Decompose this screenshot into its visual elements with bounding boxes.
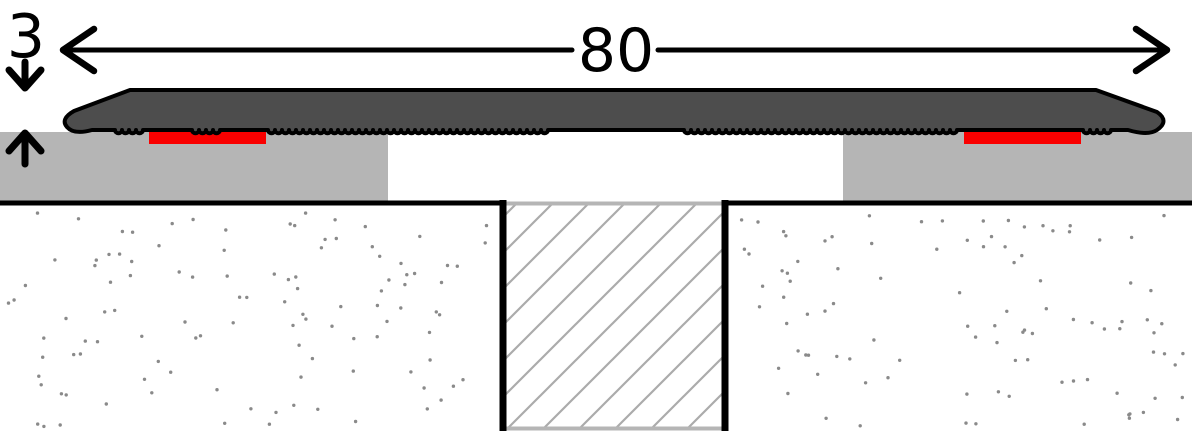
stipple-dot [1176, 418, 1179, 421]
stipple-dot [53, 258, 56, 261]
stipple-dot [935, 248, 938, 251]
stipple-dot [287, 278, 290, 281]
stipple-dot [304, 317, 307, 320]
stipple-dot [868, 214, 871, 217]
stipple-dot [413, 272, 416, 275]
stipple-dot [859, 424, 862, 427]
stipple-dot [1152, 350, 1155, 353]
stipple-dot [299, 375, 302, 378]
stipple-dot [249, 407, 252, 410]
stipple-dot [1072, 318, 1075, 321]
stipple-dot [376, 304, 379, 307]
stipple-dot [1045, 307, 1048, 310]
stipple-dot [1160, 322, 1163, 325]
stipple-dot [292, 404, 295, 407]
stipple-dot [316, 408, 319, 411]
stipple-dot [37, 375, 40, 378]
stipple-dot [352, 337, 355, 340]
stipple-dot [385, 320, 388, 323]
stipple-dot [439, 398, 442, 401]
stipple-dot [1051, 229, 1054, 232]
stipple-dot [42, 425, 45, 428]
stipple-dot [974, 422, 977, 425]
stipple-dot [387, 278, 390, 281]
stipple-dot [297, 344, 300, 347]
stipple-dot [293, 224, 296, 227]
stipple-dot [59, 423, 62, 426]
stipple-dot [301, 313, 304, 316]
stipple-dot [1039, 279, 1042, 282]
stipple-dot [823, 239, 826, 242]
stipple-dot [995, 341, 998, 344]
stipple-dot [452, 385, 455, 388]
stipple-dot [333, 218, 336, 221]
stipple-dot [993, 324, 996, 327]
stipple-dot [816, 373, 819, 376]
stipple-dot [941, 219, 944, 222]
stipple-dot [1072, 379, 1075, 382]
stipple-dot [966, 239, 969, 242]
stipple-dot [140, 335, 143, 338]
stipple-dot [72, 353, 75, 356]
stipple-dot [191, 275, 194, 278]
stipple-dot [761, 285, 764, 288]
stipple-dot [121, 230, 124, 233]
stipple-dot [990, 235, 993, 238]
diagram-canvas: 80 3 [0, 0, 1200, 440]
stipple-dot [1130, 236, 1133, 239]
stipple-dot [830, 235, 833, 238]
stipple-dot [40, 383, 43, 386]
stipple-dot [872, 338, 875, 341]
stipple-dot [974, 335, 977, 338]
stipple-dot [879, 277, 882, 280]
stipple-dot [330, 325, 333, 328]
stipple-dot [323, 238, 326, 241]
stipple-dot [824, 417, 827, 420]
stipple-dot [982, 245, 985, 248]
stipple-dot [782, 296, 785, 299]
stipple-dot [1174, 363, 1177, 366]
stipple-dot [304, 211, 307, 214]
stipple-dot [484, 241, 487, 244]
stipple-dot [405, 273, 408, 276]
stipple-dot [103, 310, 106, 313]
stipple-dot [36, 422, 39, 425]
cover-profile-shape [65, 90, 1164, 133]
stipple-dot [169, 371, 172, 374]
stipple-dot [339, 305, 342, 308]
stipple-dot [786, 392, 789, 395]
stipple-dot [183, 320, 186, 323]
stipple-dot [199, 334, 202, 337]
stipple-dot [107, 253, 110, 256]
stipple-dot [743, 248, 746, 251]
stipple-dot [129, 274, 132, 277]
stipple-dot [238, 296, 241, 299]
stipple-dot [870, 242, 873, 245]
stipple-dot [291, 324, 294, 327]
stipple-dot [335, 237, 338, 240]
stipple-dot [96, 340, 99, 343]
stipple-dot [823, 309, 826, 312]
stipple-dot [223, 422, 226, 425]
stipple-dot [1020, 254, 1023, 257]
stipple-dot [796, 349, 799, 352]
stipple-dot [1012, 261, 1015, 264]
stipple-dot [1103, 327, 1106, 330]
stipple-dot [428, 358, 431, 361]
stipple-dot [283, 300, 286, 303]
stipple-dot [740, 218, 743, 221]
stipple-dot [446, 264, 449, 267]
stipple-dot [399, 306, 402, 309]
stipple-dot [118, 252, 121, 255]
stipple-dot [273, 272, 276, 275]
stipple-dot [1008, 395, 1011, 398]
stipple-dot [426, 407, 429, 410]
stipple-dot [456, 265, 459, 268]
stipple-dot [886, 376, 889, 379]
stipple-dot [403, 283, 406, 286]
stipple-dot [786, 272, 789, 275]
stipple-dot [409, 370, 412, 373]
stipple-dot [7, 301, 10, 304]
stipple-dot [215, 388, 218, 391]
stipple-dot [41, 356, 44, 359]
stipple-dot [352, 369, 355, 372]
stipple-dot [1146, 318, 1149, 321]
stipple-dot [1149, 289, 1152, 292]
stipple-dot [143, 378, 146, 381]
stipple-dot [224, 228, 227, 231]
stipple-dot [758, 305, 761, 308]
stipple-dot [796, 260, 799, 263]
stipple-dot [1031, 332, 1034, 335]
expansion-joint-hatch [504, 204, 724, 428]
stipple-dot [42, 336, 45, 339]
stipple-dot [836, 267, 839, 270]
stipple-dot [65, 393, 68, 396]
stipple-dot [95, 258, 98, 261]
stipple-dot [784, 234, 787, 237]
stipple-dot [245, 296, 248, 299]
stipple-dot [1041, 224, 1044, 227]
stipple-dot [376, 335, 379, 338]
stipple-dot [835, 355, 838, 358]
stipple-dot [130, 260, 133, 263]
stipple-dot [113, 309, 116, 312]
stipple-dot [1086, 378, 1089, 381]
stipple-dot [320, 246, 323, 249]
stipple-dot [378, 255, 381, 258]
stipple-dot [958, 291, 961, 294]
stipple-dot [1128, 417, 1131, 420]
stipple-dot [1152, 331, 1155, 334]
stipple-dot [1127, 413, 1130, 416]
stipple-dot [226, 274, 229, 277]
stipple-dot [1007, 219, 1010, 222]
stipple-dot [428, 331, 431, 334]
stipple-dot [371, 245, 374, 248]
stipple-dot [1115, 392, 1118, 395]
stipple-dot [966, 325, 969, 328]
stipple-dot [807, 354, 810, 357]
stipple-dot [105, 402, 108, 405]
stipple-dot [1098, 238, 1101, 241]
stipple-dot [461, 378, 464, 381]
stipple-dot [440, 281, 443, 284]
stipple-dot [1005, 310, 1008, 313]
stipple-dot [194, 336, 197, 339]
stipple-dot [191, 218, 194, 221]
width-dimension-label: 80 [578, 16, 654, 86]
stipple-dot [380, 289, 383, 292]
stipple-dot [131, 231, 134, 234]
stipple-dot [848, 357, 851, 360]
stipple-dot [435, 310, 438, 313]
stipple-dot [832, 302, 835, 305]
stipple-dot [1068, 230, 1071, 233]
stipple-dot [1023, 225, 1026, 228]
stipple-dot [964, 421, 967, 424]
stipple-dot [1153, 397, 1156, 400]
stipple-dot [1163, 352, 1166, 355]
stipple-dot [1060, 381, 1063, 384]
stipple-dot [157, 360, 160, 363]
stipple-dot [289, 222, 292, 225]
stipple-dot [84, 339, 87, 342]
stipple-dot [1026, 358, 1029, 361]
stipple-dot [1142, 411, 1145, 414]
stipple-dot [399, 262, 402, 265]
height-dimension [9, 62, 41, 164]
stipple-dot [93, 264, 96, 267]
stipple-dot [485, 224, 488, 227]
stipple-dot [1162, 214, 1165, 217]
stipple-dot [24, 284, 27, 287]
stipple-dot [294, 275, 297, 278]
stipple-dot [296, 287, 299, 290]
stipple-dot [756, 220, 759, 223]
stipple-dot [268, 423, 271, 426]
stipple-dot [77, 217, 80, 220]
cross-section-diagram: 80 3 [0, 0, 1200, 440]
stipple-dot [864, 381, 867, 384]
stipple-dot [1069, 224, 1072, 227]
stipple-dot [1083, 423, 1086, 426]
stipple-dot [36, 211, 39, 214]
stipple-dot [782, 230, 785, 233]
stipple-dot [1181, 352, 1184, 355]
stipple-dot [150, 391, 153, 394]
stipple-dot [223, 249, 226, 252]
stipple-dot [1129, 281, 1132, 284]
stipple-dot [364, 225, 367, 228]
stipple-dot [1181, 396, 1184, 399]
stipple-dot [422, 386, 425, 389]
stipple-dot [997, 390, 1000, 393]
stipple-dot [777, 367, 780, 370]
stipple-dot [747, 252, 750, 255]
stipple-dot [965, 392, 968, 395]
stipple-dot [232, 321, 235, 324]
stipple-dot [1120, 320, 1123, 323]
stipple-dot [64, 317, 67, 320]
stipple-dot [1023, 328, 1026, 331]
stipple-dot [1003, 245, 1006, 248]
stipple-dot [789, 280, 792, 283]
stipple-dot [109, 281, 112, 284]
stipple-dot [274, 411, 277, 414]
stipple-dot [1118, 327, 1121, 330]
stipple-dot [438, 313, 441, 316]
stipple-dot [982, 219, 985, 222]
stipple-dot [178, 270, 181, 273]
stipple-dot [12, 298, 15, 301]
stipple-dot [920, 220, 923, 223]
stipple-dot [1014, 359, 1017, 362]
stipple-dot [806, 313, 809, 316]
stipple-dot [79, 352, 82, 355]
stipple-dot [898, 359, 901, 362]
stipple-dot [354, 420, 357, 423]
stipple-dot [60, 392, 63, 395]
stipple-dot [418, 235, 421, 238]
stipple-dot [157, 244, 160, 247]
stipple-dot [780, 269, 783, 272]
stipple-dot [171, 222, 174, 225]
stipple-dot [1090, 321, 1093, 324]
stipple-dot [785, 322, 788, 325]
stipple-dot [311, 357, 314, 360]
